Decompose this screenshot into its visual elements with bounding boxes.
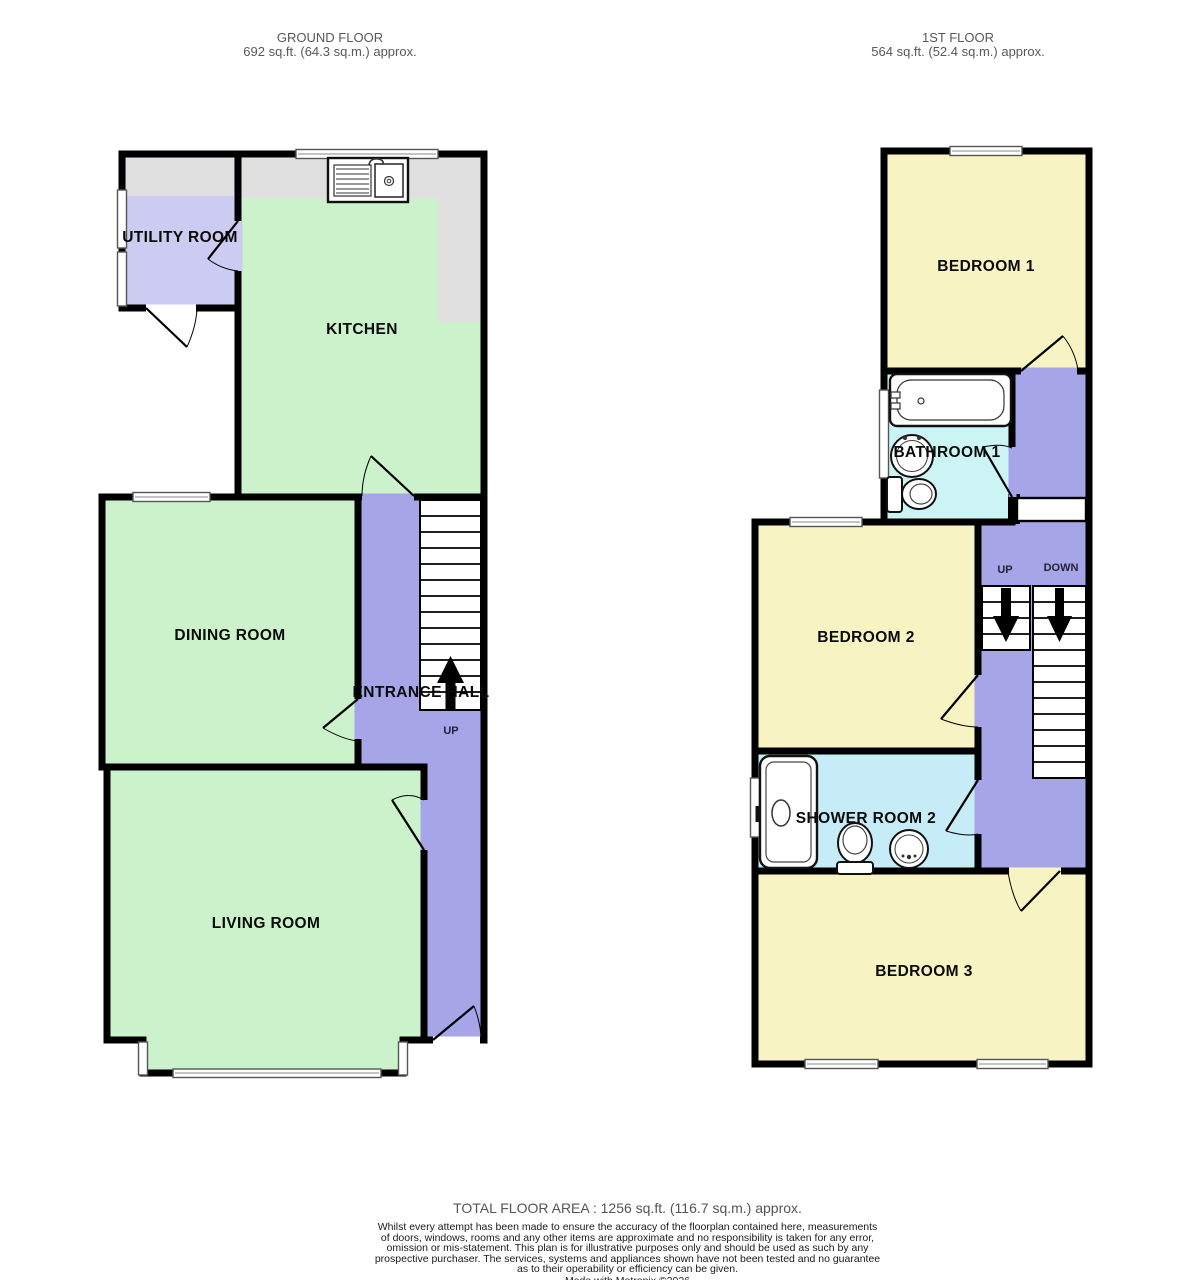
basin-icon-shower-room2 [890,830,928,868]
opening [433,1037,480,1045]
label-kitchen: KITCHEN [326,321,398,338]
utility-counter [126,158,234,196]
label-down-first: DOWN [1044,562,1079,574]
stairs-first-down [1033,586,1086,778]
label-bedroom3: BEDROOM 3 [875,963,972,980]
total-floor-area: TOTAL FLOOR AREA : 1256 sq.ft. (116.7 sq… [200,1200,1055,1216]
bath-icon [890,374,1011,426]
floorplan-canvas: UTILITY ROOM KITCHEN DINING ROOM ENTRANC… [0,0,1200,1280]
label-dining-room: DINING ROOM [174,627,285,644]
label-bedroom1: BEDROOM 1 [937,258,1034,275]
opening [1009,868,1061,876]
label-up-ground: UP [443,725,458,737]
opening [975,675,983,727]
kitchen-sink-icon [328,158,408,202]
first-floor-plan: BEDROOM 1 BATHROOM 1 BEDROOM 2 UP DOWN S… [751,147,1090,1069]
kitchen-counter-right [438,158,480,322]
credit-line: Made with Metropix ©2026 [200,1276,1055,1280]
opening [355,699,363,739]
disclaimer-line: as to their operability or efficiency ca… [200,1264,1055,1275]
opening [975,780,983,834]
opening [1009,447,1017,497]
toilet-icon-bathroom1 [887,477,936,512]
opening [362,494,414,502]
stairs-ground [420,500,481,710]
opening [1021,368,1077,376]
opening [146,305,196,313]
label-living-room: LIVING ROOM [212,915,321,932]
label-up-first: UP [997,564,1012,576]
label-entrance-hall: ENTRANCE HALL [353,684,490,701]
floorplan-page: GROUND FLOOR 692 sq.ft. (64.3 sq.m.) app… [0,0,1200,1280]
label-bathroom1: BATHROOM 1 [893,444,1000,461]
toilet-icon-shower-room2 [837,823,873,874]
label-shower-room2: SHOWER ROOM 2 [796,810,936,827]
landing-cupboard [1008,494,1086,524]
ground-floor-plan: UTILITY ROOM KITCHEN DINING ROOM ENTRANC… [102,150,489,1078]
label-utility-room: UTILITY ROOM [122,229,238,246]
footer-text-block: TOTAL FLOOR AREA : 1256 sq.ft. (116.7 sq… [200,1200,1055,1280]
opening [421,800,429,850]
disclaimer-line: Whilst every attempt has been made to en… [200,1222,1055,1233]
stairs-first-up [982,586,1030,650]
label-bedroom2: BEDROOM 2 [817,629,914,646]
